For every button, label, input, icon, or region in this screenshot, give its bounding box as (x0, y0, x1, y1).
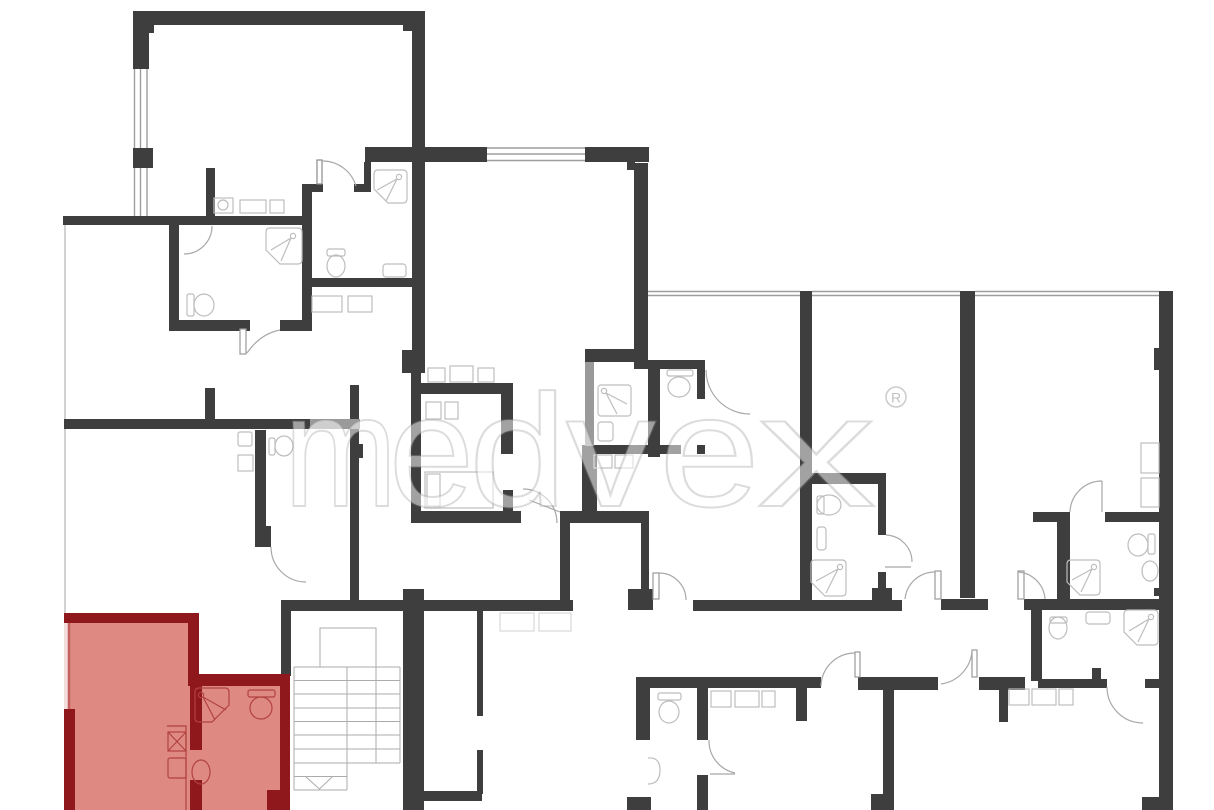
svg-text:x: x (757, 361, 876, 540)
svg-text:e: e (659, 361, 760, 540)
svg-text:m: m (284, 361, 397, 540)
svg-text:e: e (389, 361, 474, 540)
svg-text:v: v (566, 361, 656, 540)
svg-text:R: R (891, 390, 901, 406)
svg-text:d: d (469, 361, 567, 540)
